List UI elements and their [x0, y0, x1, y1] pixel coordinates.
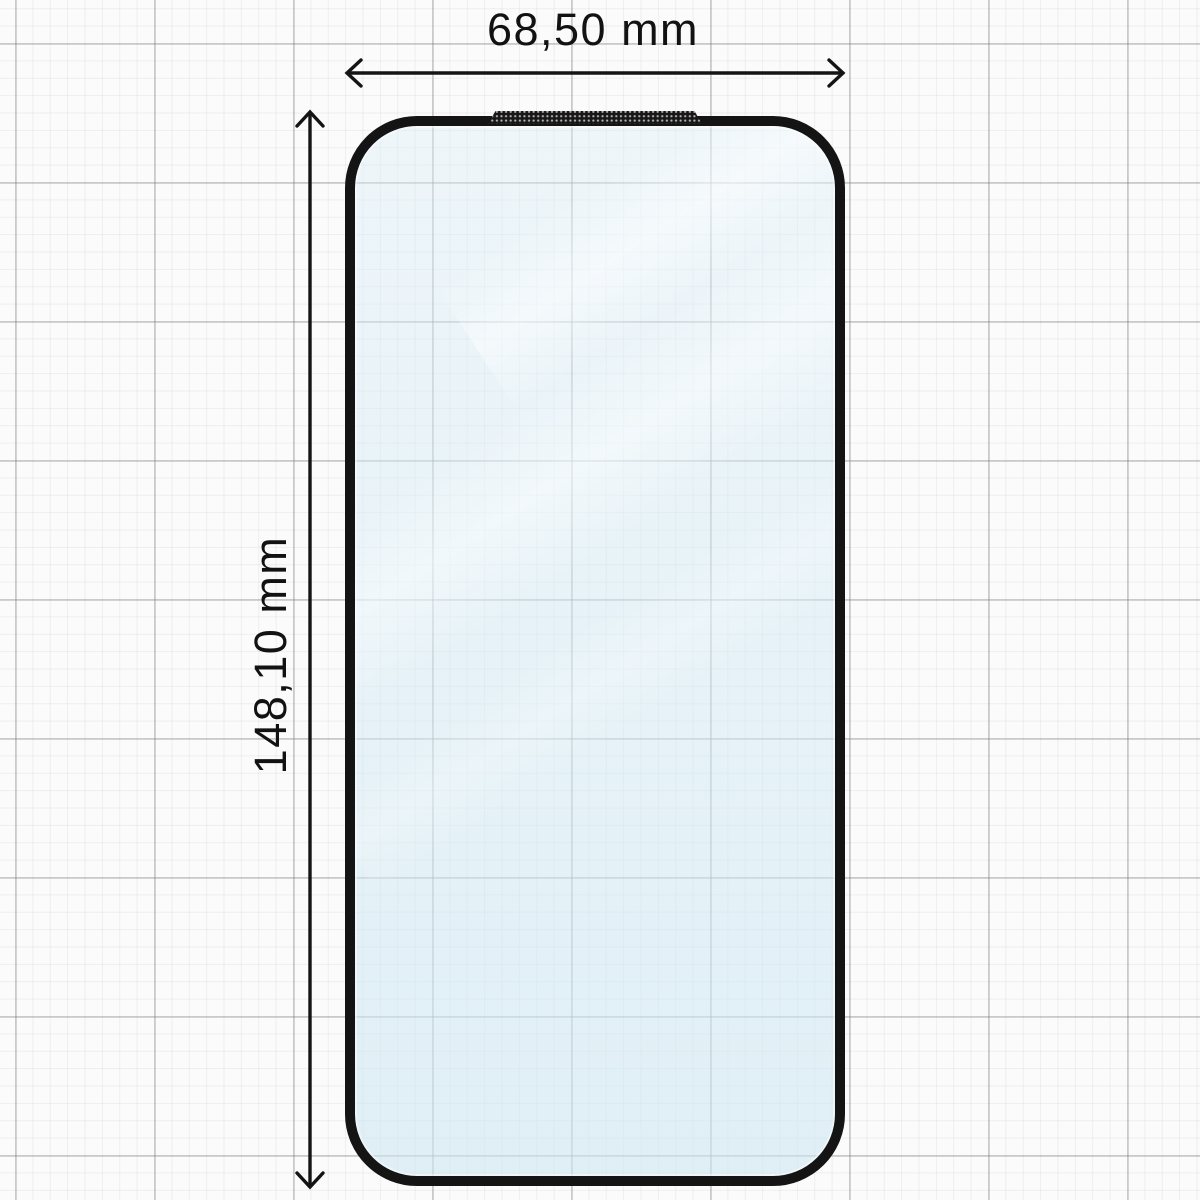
height-dimension-arrow-icon: [297, 112, 323, 1187]
height-dimension-label: 148,10 mm: [245, 536, 297, 775]
dimension-arrows-layer: [0, 0, 1200, 1200]
width-dimension-arrow-icon: [347, 60, 843, 86]
blueprint-grid-canvas: 68,50 mm 148,10 mm: [0, 0, 1200, 1200]
width-dimension-label: 68,50 mm: [487, 4, 699, 56]
